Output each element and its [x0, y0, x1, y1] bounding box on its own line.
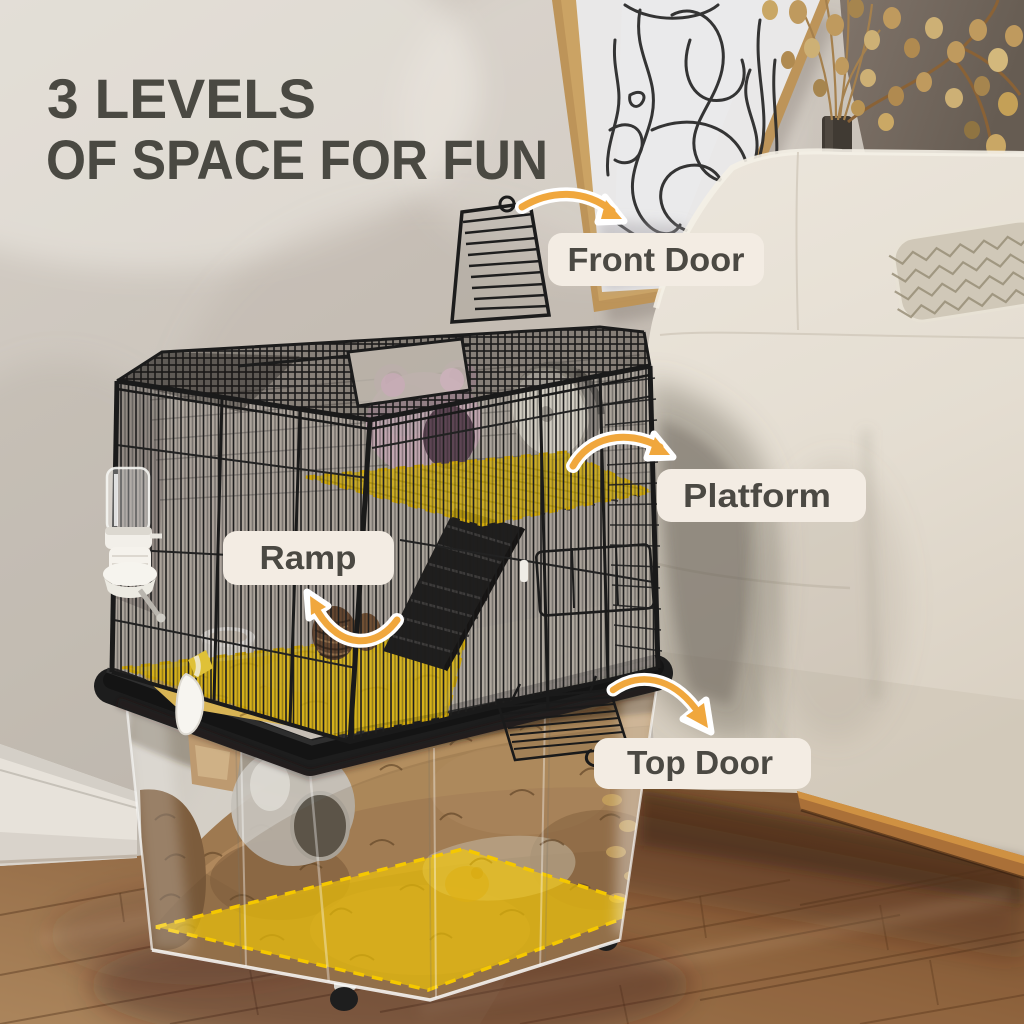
svg-text:Front Door: Front Door — [568, 241, 745, 278]
svg-text:OF SPACE FOR FUN: OF SPACE FOR FUN — [46, 128, 548, 191]
svg-text:Ramp: Ramp — [260, 539, 357, 576]
svg-text:3 LEVELS: 3 LEVELS — [47, 67, 316, 130]
svg-text:Top Door: Top Door — [627, 744, 773, 781]
svg-text:Platform: Platform — [683, 477, 831, 514]
